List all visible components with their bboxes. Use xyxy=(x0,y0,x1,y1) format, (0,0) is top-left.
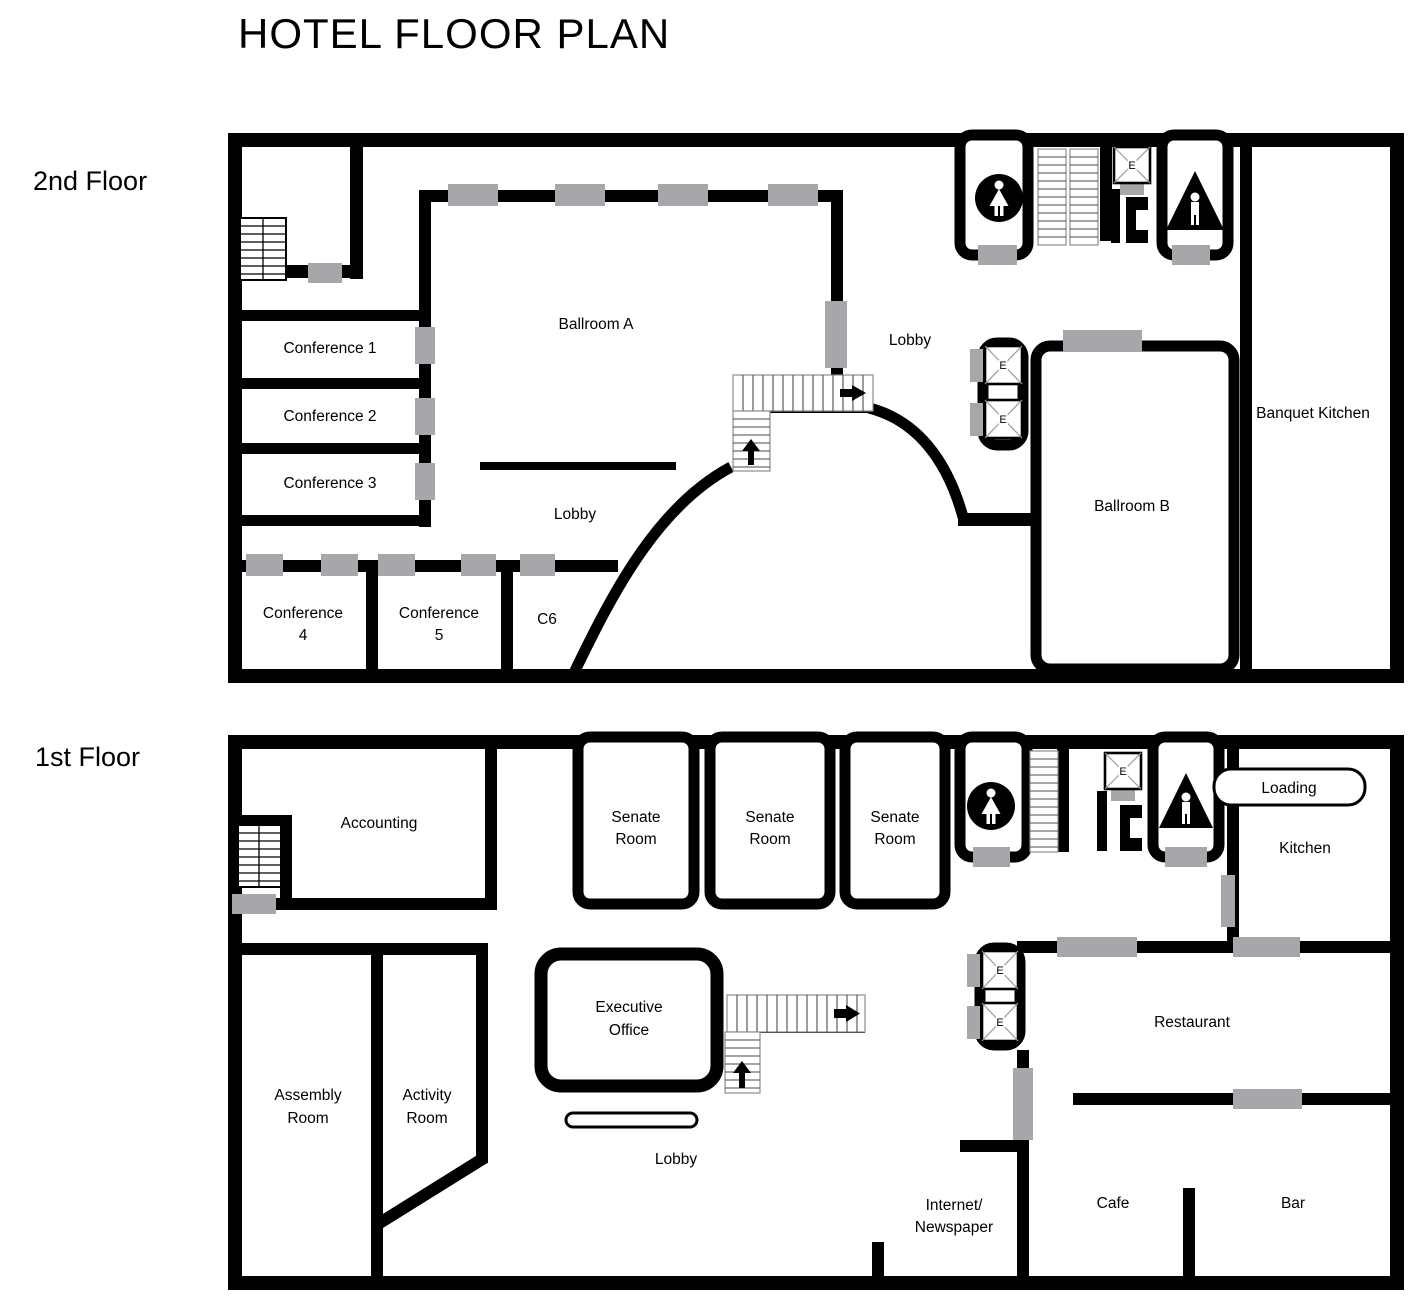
wall xyxy=(1390,735,1404,1290)
door-marker xyxy=(415,463,435,500)
wall xyxy=(1183,1188,1195,1276)
wall xyxy=(960,1140,1029,1152)
elevator-letter: E xyxy=(996,965,1003,977)
floor-label-2nd: 2nd Floor xyxy=(33,166,147,197)
door-marker xyxy=(461,554,496,576)
elevator-icon: E xyxy=(1105,753,1141,789)
room-label-senate-room: Room xyxy=(749,831,790,848)
elevator-letter: E xyxy=(996,1017,1003,1029)
room-label-assembly-room: Room xyxy=(287,1110,328,1127)
phone-icon xyxy=(1120,805,1142,851)
room-label-conference-4: Conference xyxy=(263,605,343,622)
wall xyxy=(480,462,676,470)
stairwell-top-left-icon xyxy=(238,825,281,887)
central-stairs-icon xyxy=(725,995,865,1093)
room-label-conference-2: Conference 2 xyxy=(283,408,376,425)
floor-plan-1st-floor: E E E Accounting Senate Room Senate Room… xyxy=(228,735,1404,1290)
door-marker xyxy=(448,184,498,206)
room-label-conference-5-num: 5 xyxy=(435,627,444,644)
door-marker xyxy=(378,554,415,576)
floor-plan-2nd-floor: E E E Ballroom A Lobby Lobby Conference … xyxy=(228,133,1404,683)
door-marker xyxy=(768,184,818,206)
wall xyxy=(1073,1093,1390,1105)
room-label-internet-newspaper: Newspaper xyxy=(915,1219,993,1236)
stairwell-top-left-icon xyxy=(240,218,286,280)
room-label-conference-1: Conference 1 xyxy=(283,340,376,357)
rooms-1st-floor xyxy=(541,737,1365,1127)
room-label-executive-office: Office xyxy=(609,1022,649,1039)
wall xyxy=(1057,749,1069,852)
room-label-ballroom-b: Ballroom B xyxy=(1094,498,1170,515)
room-label-internet-newspaper: Internet/ xyxy=(926,1197,984,1214)
wall xyxy=(1390,133,1404,683)
wall xyxy=(242,943,488,955)
elevator-icon: E xyxy=(1114,147,1150,183)
wall xyxy=(242,443,431,454)
door-marker xyxy=(967,954,980,987)
wall xyxy=(242,378,431,389)
womens-restroom-icon xyxy=(967,782,1015,830)
door-marker xyxy=(1233,1089,1302,1109)
door-marker xyxy=(973,847,1010,867)
hotel-floor-plan-page: HOTEL FLOOR PLAN 2nd Floor 1st Floor xyxy=(0,0,1418,1304)
room-label-kitchen: Kitchen xyxy=(1279,840,1331,857)
elevator-letter: E xyxy=(1128,160,1135,172)
room-label-senate-room: Senate xyxy=(870,809,919,826)
central-stairs-icon xyxy=(733,375,873,471)
wall xyxy=(958,513,1042,526)
room-label-executive-office: Executive xyxy=(595,999,662,1016)
room-label-loading: Loading xyxy=(1261,780,1316,797)
page-title: HOTEL FLOOR PLAN xyxy=(238,10,670,58)
room-label-activity-room: Room xyxy=(406,1110,447,1127)
wall xyxy=(485,749,497,910)
door-marker xyxy=(970,403,983,436)
reception-desk xyxy=(566,1113,697,1127)
room-label-ballroom-a: Ballroom A xyxy=(559,316,635,333)
door-marker xyxy=(1057,937,1137,957)
elevator-icon: E xyxy=(985,346,1022,384)
door-marker xyxy=(1013,1068,1033,1140)
floor-label-1st: 1st Floor xyxy=(35,742,140,773)
wall xyxy=(242,310,431,321)
door-marker xyxy=(415,398,435,435)
curved-wall xyxy=(869,408,963,517)
room-label-senate-room: Senate xyxy=(611,809,660,826)
wall xyxy=(366,560,378,669)
elevator-icon: E xyxy=(982,1003,1018,1041)
door-marker xyxy=(1172,245,1210,265)
wall xyxy=(242,515,431,526)
stairs-top-icon xyxy=(1030,751,1058,852)
room-label-senate-room: Senate xyxy=(745,809,794,826)
wall xyxy=(872,1242,884,1276)
room-label-c6: C6 xyxy=(537,611,557,628)
door-marker xyxy=(978,245,1017,265)
door-marker xyxy=(246,554,283,576)
elevator-icon: E xyxy=(982,951,1018,989)
door-marker xyxy=(1233,937,1300,957)
wall xyxy=(228,735,242,1290)
elevator-letter: E xyxy=(999,414,1006,426)
door-marker xyxy=(555,184,605,206)
room-label-cafe: Cafe xyxy=(1097,1195,1130,1212)
room-label-senate-room: Room xyxy=(615,831,656,848)
wall xyxy=(242,560,618,572)
door-marker xyxy=(321,554,358,576)
door-marker xyxy=(232,894,276,914)
room-label-accounting: Accounting xyxy=(341,815,418,832)
room-label-lobby-upper: Lobby xyxy=(889,332,931,349)
room-label-bar: Bar xyxy=(1281,1195,1305,1212)
door-marker xyxy=(415,327,435,364)
door-marker xyxy=(967,1006,980,1039)
room-label-lobby-lower: Lobby xyxy=(554,506,596,523)
wall xyxy=(242,898,497,910)
wall xyxy=(1240,147,1252,669)
wall xyxy=(501,560,513,669)
elevator-letter: E xyxy=(1119,766,1126,778)
womens-restroom-icon xyxy=(975,174,1023,222)
door-marker xyxy=(520,554,555,576)
elevator-letter: E xyxy=(999,360,1006,372)
room-label-banquet-kitchen: Banquet Kitchen xyxy=(1256,405,1370,422)
door-marker xyxy=(1221,875,1235,927)
wall xyxy=(350,133,363,279)
wall xyxy=(1100,133,1112,241)
door-marker xyxy=(658,184,708,206)
wall xyxy=(228,1276,1404,1290)
executive-office-walls xyxy=(541,954,717,1086)
room-label-activity-room: Activity xyxy=(402,1087,451,1104)
wall xyxy=(1111,189,1120,243)
door-marker xyxy=(1165,847,1207,867)
room-label-conference-5: Conference xyxy=(399,605,479,622)
wall xyxy=(1097,791,1107,851)
room-label-assembly-room: Assembly xyxy=(274,1087,341,1104)
room-label-conference-3: Conference 3 xyxy=(283,475,376,492)
elevator-icon: E xyxy=(985,400,1022,438)
room-label-senate-room: Room xyxy=(874,831,915,848)
wall xyxy=(831,190,843,303)
room-label-conference-4-num: 4 xyxy=(299,627,308,644)
diagonal-wall xyxy=(378,1158,484,1224)
door-marker xyxy=(970,349,983,382)
room-label-lobby: Lobby xyxy=(655,1151,697,1168)
wall xyxy=(228,133,242,683)
wall xyxy=(476,943,488,1163)
door-marker xyxy=(825,301,847,368)
phone-icon xyxy=(1126,197,1148,243)
room-label-restaurant: Restaurant xyxy=(1154,1014,1231,1031)
door-marker xyxy=(308,263,342,283)
stairs-top-right-icon xyxy=(1038,149,1098,245)
door-marker xyxy=(1063,330,1142,352)
